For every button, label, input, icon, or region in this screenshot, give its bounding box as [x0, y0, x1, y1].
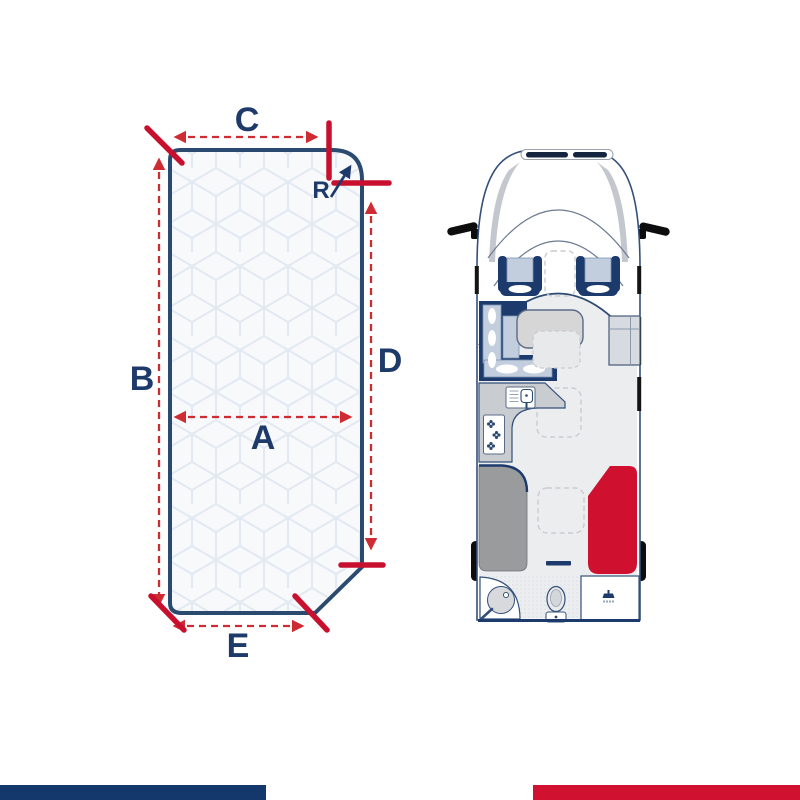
label-dimension-d: D: [378, 342, 403, 380]
window-right-front: [637, 266, 641, 294]
footer-bar-right: [533, 785, 800, 800]
cab-seat-left: [498, 256, 542, 296]
label-dimension-radius: R: [312, 177, 329, 204]
entry-step: [546, 561, 571, 566]
label-dimension-c: C: [235, 101, 260, 139]
label-dimension-e: E: [227, 627, 250, 665]
cabinet: [609, 316, 640, 365]
product-dimension-page: C B D A E R: [0, 0, 800, 800]
label-dimension-a: A: [251, 419, 276, 457]
side-mirror-left: [446, 222, 479, 239]
toilet: [546, 587, 566, 623]
window-left-front: [475, 266, 479, 294]
table-extension-ghost: [533, 331, 580, 368]
side-mirror-right: [638, 222, 670, 239]
cab-seat-right: [576, 256, 620, 296]
tick-top-left: [147, 128, 182, 163]
shower: [581, 576, 639, 620]
bathroom: [479, 576, 639, 622]
window-right-lower: [637, 377, 641, 411]
footer-bar-left: [0, 785, 266, 800]
mattress-dimension-diagram: C B D A E R: [90, 80, 430, 680]
label-dimension-b: B: [130, 360, 155, 398]
kitchen-hob: [484, 415, 505, 454]
bed-gray: [479, 466, 527, 571]
mattress-outline-shape: [170, 150, 362, 613]
front-grille-slot-right: [573, 152, 607, 158]
motorhome-floorplan: [440, 128, 682, 662]
kitchen-sink: [506, 387, 535, 409]
front-grille-slot-left: [526, 152, 568, 158]
